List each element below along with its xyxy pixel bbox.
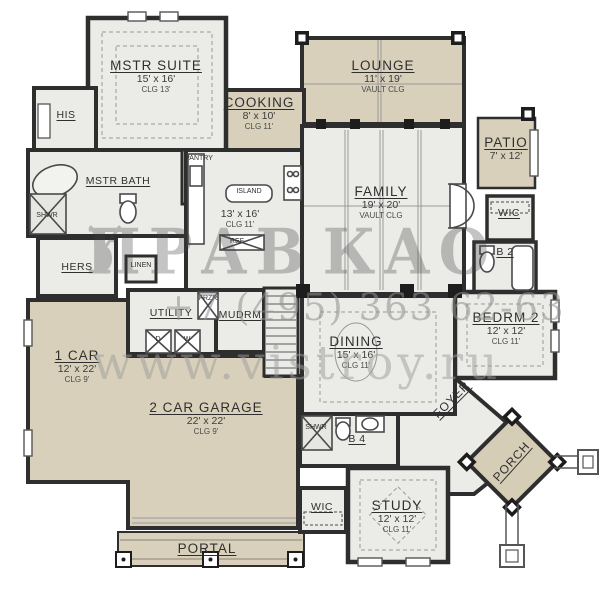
floor-plan: MSTR SUITE 15' x 16' CLG 13' HIS COOKING… <box>0 0 600 590</box>
fireplace <box>450 184 466 228</box>
room-study <box>348 468 448 562</box>
his-builtin <box>38 104 50 138</box>
room-hers <box>38 238 116 296</box>
room-mstr-suite <box>88 18 226 152</box>
island-box <box>226 185 272 202</box>
room-lounge <box>302 38 464 124</box>
range <box>284 166 301 200</box>
room-mudrm <box>216 290 264 352</box>
room-linen <box>126 256 156 282</box>
stairs <box>264 288 298 376</box>
floor-plan-drawing <box>0 0 600 590</box>
room-patio <box>478 118 535 188</box>
room-bedrm2 <box>455 292 555 378</box>
room-wic-right <box>487 196 533 240</box>
room-dining <box>302 296 455 414</box>
bathtub <box>512 246 533 290</box>
